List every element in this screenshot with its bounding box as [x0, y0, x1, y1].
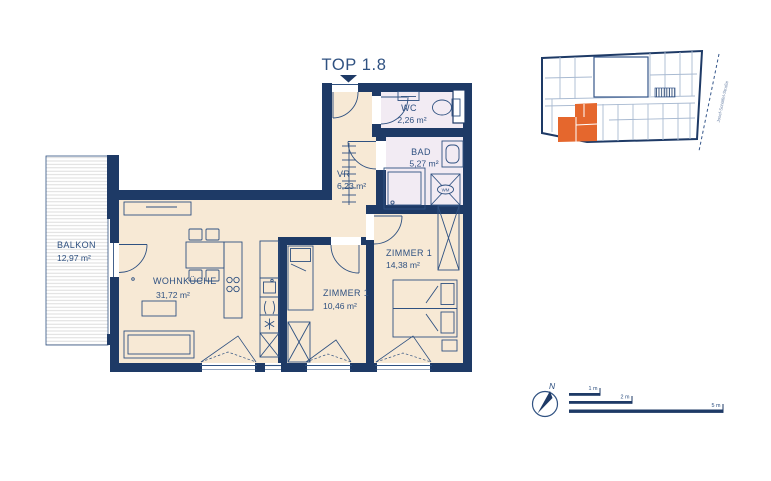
unit-title: TOP 1.8: [321, 56, 386, 74]
north-compass: N: [533, 381, 558, 417]
room-label-zimmer1: ZIMMER 1: [386, 248, 432, 258]
room-label-bad: BAD: [411, 147, 431, 157]
wc-door-gap: [372, 96, 381, 124]
zimmer1-door-gap: [366, 214, 374, 240]
scale-label-2m: 2 m: [621, 395, 630, 401]
washing-machine-label: WM: [442, 187, 450, 192]
room-label-balkon: BALKON: [57, 240, 96, 250]
room-area-balkon: 12,97 m²: [57, 253, 91, 263]
entrance-arrow-icon: [340, 75, 357, 83]
room-label-zimmer2: ZIMMER 1: [323, 288, 369, 298]
scale-bar: 1 m 2 m 5 m: [569, 386, 723, 413]
scale-label-5m: 5 m: [712, 403, 721, 409]
room-area-bad: 5,27 m²: [409, 159, 438, 169]
room-label-vr: VR: [337, 169, 350, 179]
room-area-zimmer1: 14,38 m²: [386, 260, 420, 270]
stair-core: [655, 88, 675, 97]
scale-label-1m: 1 m: [589, 386, 598, 392]
street-label: Josef-Schöffel-Straße: [716, 80, 730, 123]
north-label: N: [549, 381, 556, 391]
compass-needle-icon: [538, 391, 553, 414]
room-area-vr: 6,23 m²: [337, 181, 366, 191]
room-area-wc: 2,26 m²: [397, 115, 426, 125]
zimmer2-door-gap: [331, 237, 361, 245]
bad-door-gap: [376, 141, 386, 170]
floorplan-canvas: TOP 1.8: [0, 0, 771, 481]
scale-bar-2m: [569, 401, 632, 404]
room-label-wohnkueche: WOHNKÜCHE: [153, 276, 217, 286]
scale-bar-1m: [569, 393, 600, 396]
shaft-niche: [453, 90, 465, 123]
room-area-zimmer2: 10,46 m²: [323, 301, 357, 311]
balcony: [46, 155, 119, 345]
room-label-wc: WC: [401, 103, 417, 113]
room-area-wohnkueche: 31,72 m²: [156, 290, 190, 300]
window-small: [265, 363, 281, 372]
balcony-door-gap: [110, 243, 119, 277]
courtyard: [594, 57, 648, 97]
scale-bar-5m: [569, 410, 723, 413]
overview-map: Josef-Schöffel-Straße: [542, 51, 729, 151]
floorplan-svg: TOP 1.8: [0, 0, 771, 481]
balcony-deck: [46, 156, 108, 345]
